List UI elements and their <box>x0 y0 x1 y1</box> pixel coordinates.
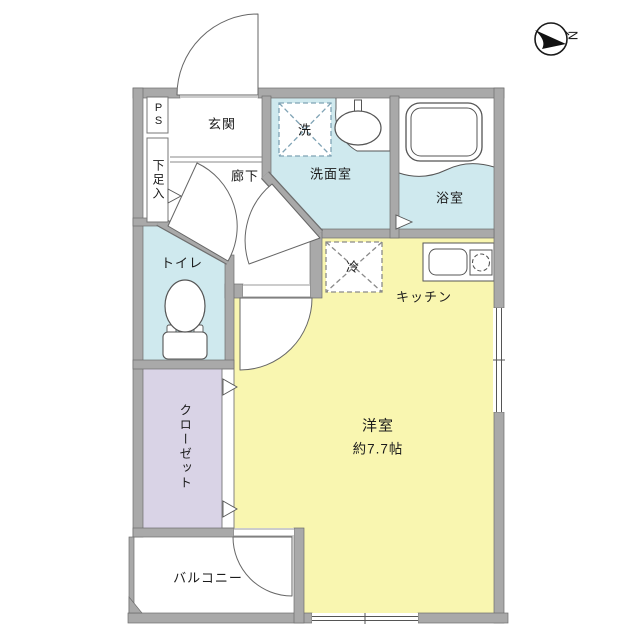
north-label: N <box>567 31 580 41</box>
washroom-label: 洗面室 <box>310 168 352 181</box>
washer-space-label: 洗 <box>298 124 312 137</box>
kitchen-label: キッチン <box>396 291 452 304</box>
north-arrow-icon <box>535 23 569 55</box>
fridge-space-label: 冷 <box>346 261 360 274</box>
bathtub-icon <box>406 103 482 161</box>
balcony-rail-corner <box>129 597 142 613</box>
entrance-door-swing <box>177 14 258 95</box>
right-window <box>493 308 505 412</box>
kitchen-sink-icon <box>429 249 467 275</box>
bottom-window <box>312 613 418 624</box>
kitchen-counter <box>423 243 494 281</box>
pipe-space-label: PS <box>153 102 164 128</box>
toilet-icon <box>163 280 207 359</box>
living-room-size: 約7.7帖 <box>353 442 404 456</box>
closet-label: クローゼット <box>178 404 191 491</box>
hallway-label: 廊下 <box>231 170 259 183</box>
living-room-label: 洋室 <box>362 419 394 434</box>
balcony-door-swing <box>233 537 292 596</box>
genkan-label: 玄関 <box>208 118 236 131</box>
balcony-label: バルコニー <box>173 572 243 585</box>
shoe-cabinet-label: 下足入 <box>152 159 164 201</box>
bathroom-label: 浴室 <box>436 192 464 205</box>
toilet-label: トイレ <box>161 257 203 270</box>
floor-plan: PS 玄関 下足入 廊下 洗 洗面室 浴室 トイレ 冷 キッチン 洋室 約7.7… <box>0 0 640 640</box>
floor-plan-drawing <box>0 0 640 640</box>
